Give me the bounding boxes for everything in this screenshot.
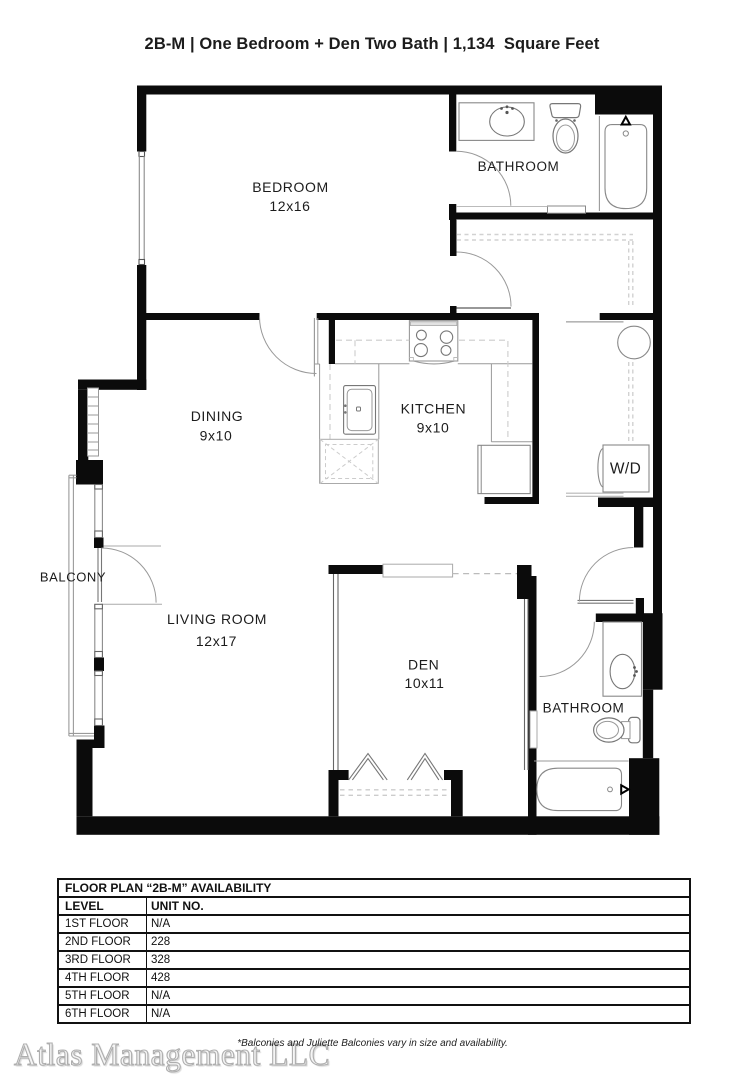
svg-text:BALCONY: BALCONY: [40, 570, 106, 585]
svg-text:12x17: 12x17: [196, 633, 237, 649]
svg-text:BEDROOM: BEDROOM: [252, 179, 329, 195]
svg-text:9x10: 9x10: [417, 420, 450, 436]
svg-text:2B-M | One Bedroom + Den Two B: 2B-M | One Bedroom + Den Two Bath | 1,13…: [145, 35, 600, 53]
svg-text:BATHROOM: BATHROOM: [543, 701, 625, 716]
svg-text:10x11: 10x11: [404, 675, 444, 691]
svg-text:W/D: W/D: [610, 461, 641, 478]
svg-text:KITCHEN: KITCHEN: [401, 401, 467, 417]
svg-text:LIVING ROOM: LIVING ROOM: [167, 611, 267, 627]
svg-text:12x16: 12x16: [269, 198, 310, 214]
svg-text:DINING: DINING: [191, 408, 244, 424]
svg-text:DEN: DEN: [408, 657, 439, 673]
svg-text:BATHROOM: BATHROOM: [478, 159, 560, 174]
svg-text:9x10: 9x10: [200, 428, 233, 444]
